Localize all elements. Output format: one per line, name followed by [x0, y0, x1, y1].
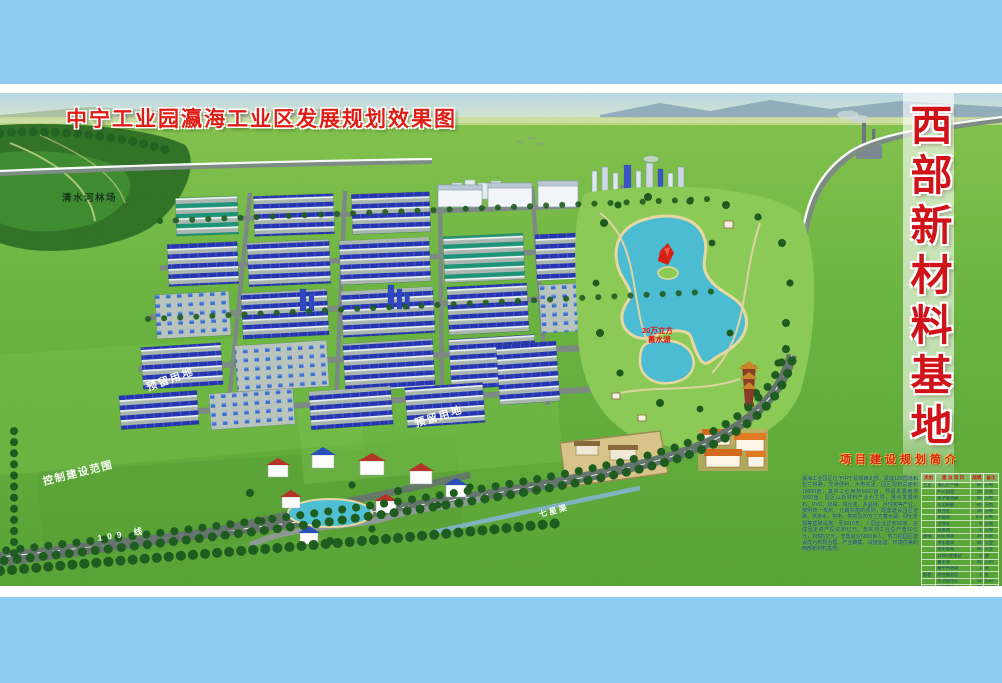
label-lake-volume: 20万立方 [642, 325, 673, 335]
intro-paragraph: 瀛海工业园区位于中宁县城西北部，紧临109国道和包兰铁路，交通便利，水电充足。园… [802, 476, 918, 553]
project-info-panel: 项目建设规划简介 瀛海工业园区位于中宁县城西北部，紧临109国道和包兰铁路，交通… [798, 451, 1002, 585]
top-white-gap [0, 84, 1002, 93]
page-title: 中宁工业园瀛海工业区发展规划效果图 [66, 103, 457, 133]
header-category: 类别 [922, 474, 936, 483]
top-blue-band [0, 0, 1002, 84]
label-lake-name: 蓄水湖 [648, 334, 671, 344]
lower-pond [640, 340, 694, 383]
planning-poster: 清水河林场 预留用地 预留用地 控制建设范围 109 线 七星渠 109 线 2… [0, 0, 1002, 683]
table-header-row: 类别 建 设 项 目 规模 备注 [922, 474, 999, 483]
bottom-white-gap [0, 586, 1002, 597]
aerial-rendering: 清水河林场 预留用地 预留用地 控制建设范围 109 线 七星渠 109 线 2… [0, 93, 1002, 586]
vertical-banner: 西部新材料基地 [903, 93, 954, 493]
header-project: 建 设 项 目 [936, 474, 970, 483]
temple-complex [698, 429, 768, 471]
banner-text: 西部新材料基地 [903, 103, 954, 493]
warehouses [438, 181, 578, 207]
info-panel-title: 项目建设规划简介 [840, 451, 960, 467]
bottom-blue-band [0, 597, 1002, 683]
header-note: 备注 [983, 474, 998, 483]
header-scale: 规模 [970, 474, 983, 483]
label-forest: 清水河林场 [62, 192, 117, 204]
project-table: 类别 建 设 项 目 规模 备注 工业 电石生产线 30 万吨 [921, 473, 999, 586]
lake-island [658, 267, 678, 279]
